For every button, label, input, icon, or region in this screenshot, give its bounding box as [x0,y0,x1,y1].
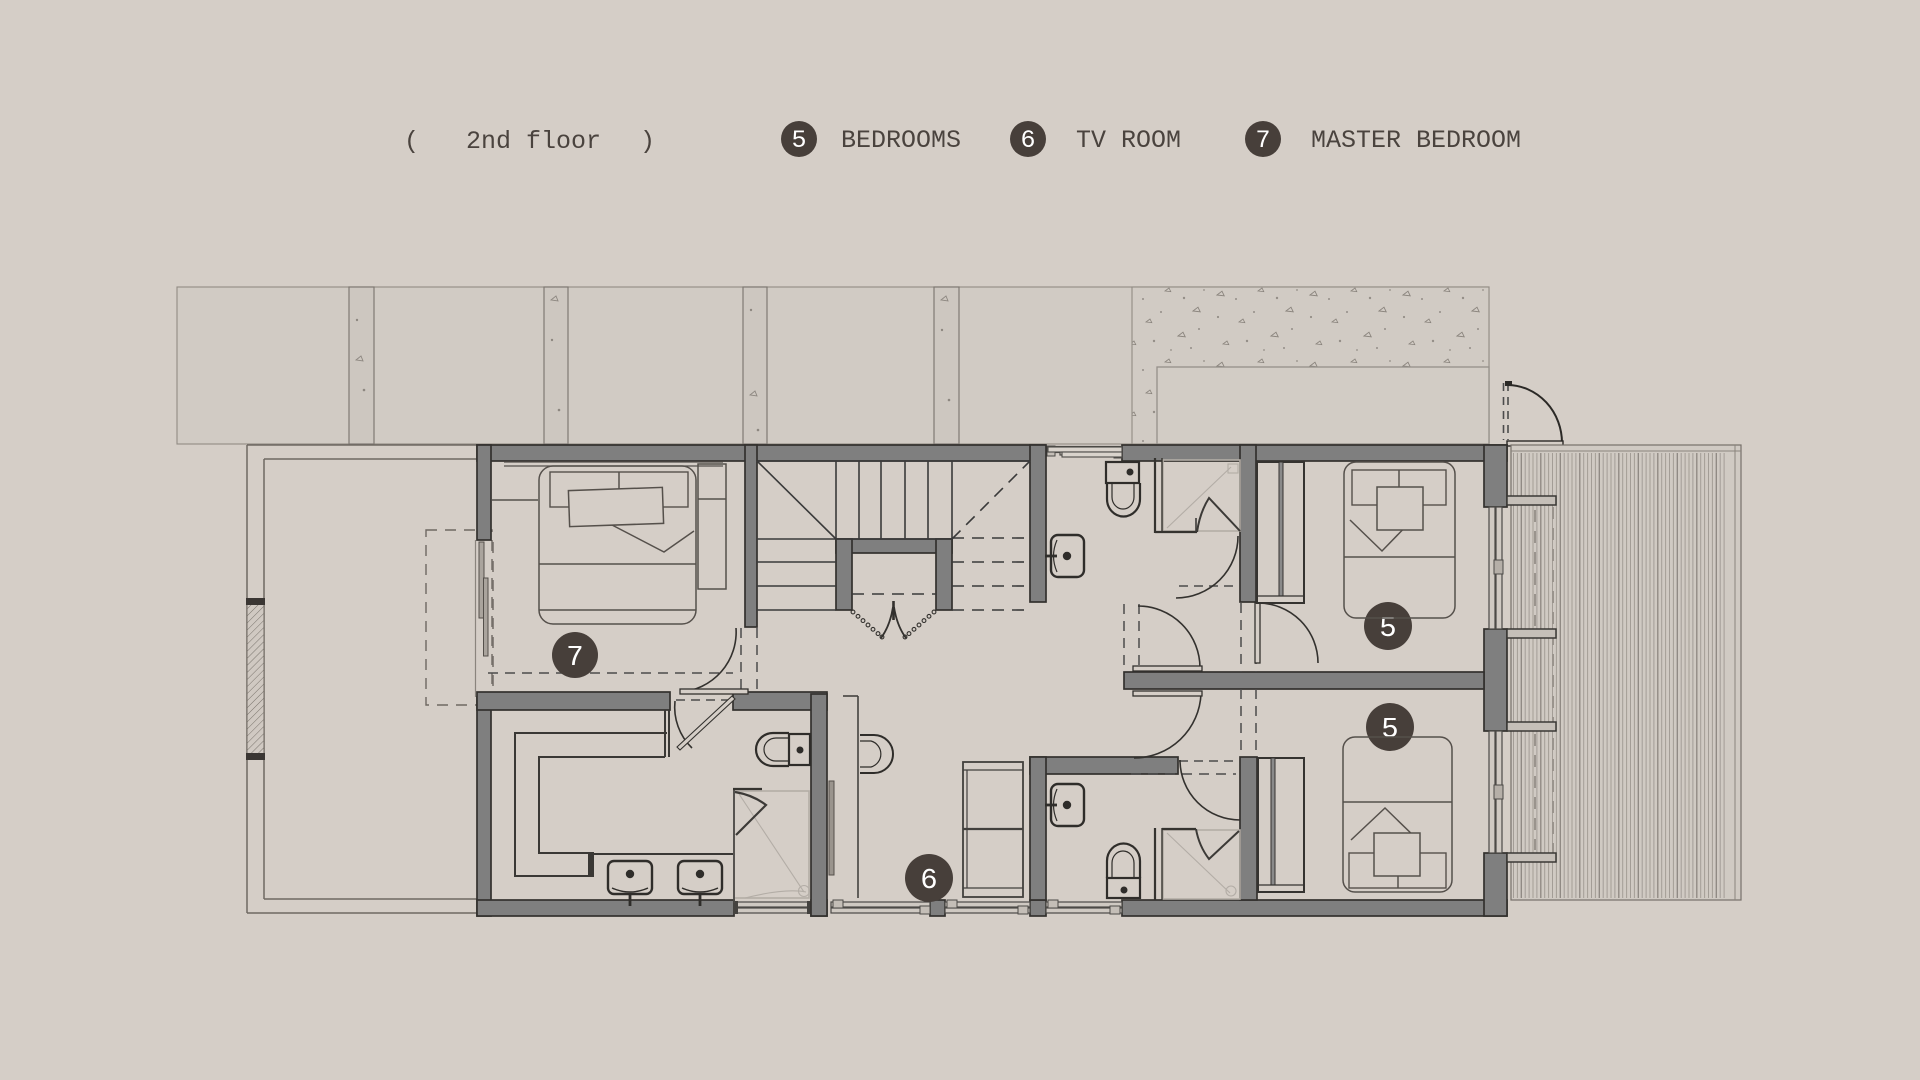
svg-text:5: 5 [1379,612,1396,645]
svg-text:6: 6 [1020,126,1035,155]
svg-text:TV ROOM: TV ROOM [1076,126,1181,155]
svg-text:7: 7 [566,641,583,674]
svg-text:BEDROOMS: BEDROOMS [841,126,961,155]
svg-text:5: 5 [1381,713,1398,746]
svg-text:MASTER BEDROOM: MASTER BEDROOM [1311,126,1521,155]
svg-text:6: 6 [920,864,937,897]
svg-text:5: 5 [791,126,806,155]
svg-text:(: ( [404,127,419,156]
svg-text:2nd floor: 2nd floor [466,127,601,156]
svg-text:7: 7 [1255,126,1270,155]
svg-text:): ) [640,127,655,156]
